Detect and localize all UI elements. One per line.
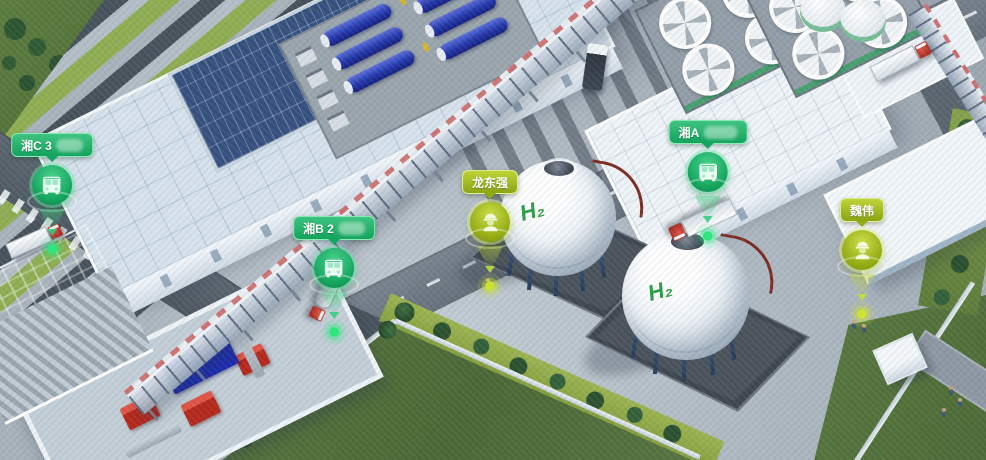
location-dot [695, 223, 721, 249]
worker-icon[interactable] [842, 230, 882, 270]
bus-icon-glyph [695, 160, 720, 185]
worker-icon-glyph [849, 238, 874, 263]
yellow-equipment [422, 42, 430, 52]
marker-beam [477, 246, 503, 272]
person-marker-longdongqiang[interactable]: 龙东强 [462, 170, 518, 299]
vehicle-marker-xiangB[interactable]: 湘B 2 [293, 216, 375, 345]
plate-blur [338, 222, 365, 235]
bus-icon[interactable] [32, 165, 72, 205]
marker-beam [695, 196, 721, 222]
bus-icon[interactable] [314, 248, 354, 288]
pedestrian-figure [942, 408, 946, 417]
marker-badge[interactable]: 湘A [669, 120, 748, 144]
scene-3d-viewport[interactable]: H₂ H₂ 湘C 3 [0, 0, 986, 460]
worker-icon[interactable] [470, 202, 510, 242]
equipment-box [295, 46, 318, 67]
marker-badge[interactable]: 湘B 2 [293, 216, 375, 240]
pedestrian-figure [958, 398, 962, 407]
marker-label: 龙东强 [472, 174, 508, 191]
marker-badge[interactable]: 龙东强 [462, 170, 518, 194]
location-dot [849, 301, 875, 327]
worker-icon-glyph [477, 210, 502, 235]
marker-badge[interactable]: 魏伟 [840, 198, 884, 222]
marker-beam [321, 292, 347, 318]
marker-beam [849, 274, 875, 300]
location-dot [39, 236, 65, 262]
bus-icon[interactable] [688, 152, 728, 192]
bus-icon-glyph [322, 256, 347, 281]
marker-label: 湘C 3 [21, 137, 52, 154]
plate-blur [703, 126, 737, 139]
person-marker-weiwei[interactable]: 魏伟 [840, 198, 884, 327]
plate-blur [56, 139, 83, 152]
marker-beam [39, 209, 65, 235]
marker-label: 湘B 2 [303, 220, 334, 237]
equipment-box [327, 110, 350, 131]
equipment-box [305, 67, 328, 88]
marker-label: 魏伟 [850, 202, 874, 219]
vehicle-marker-xiangC[interactable]: 湘C 3 [11, 133, 93, 262]
marker-badge[interactable]: 湘C 3 [11, 133, 93, 157]
vehicle-marker-xiangA[interactable]: 湘A [669, 120, 748, 249]
equipment-box [316, 89, 339, 110]
white-storage-tank [840, 0, 886, 42]
bus-icon-glyph [40, 173, 65, 198]
pedestrian-figure [949, 386, 953, 395]
location-dot [477, 273, 503, 299]
yellow-equipment [398, 0, 406, 6]
location-dot [321, 319, 347, 345]
marker-label: 湘A [679, 124, 700, 141]
